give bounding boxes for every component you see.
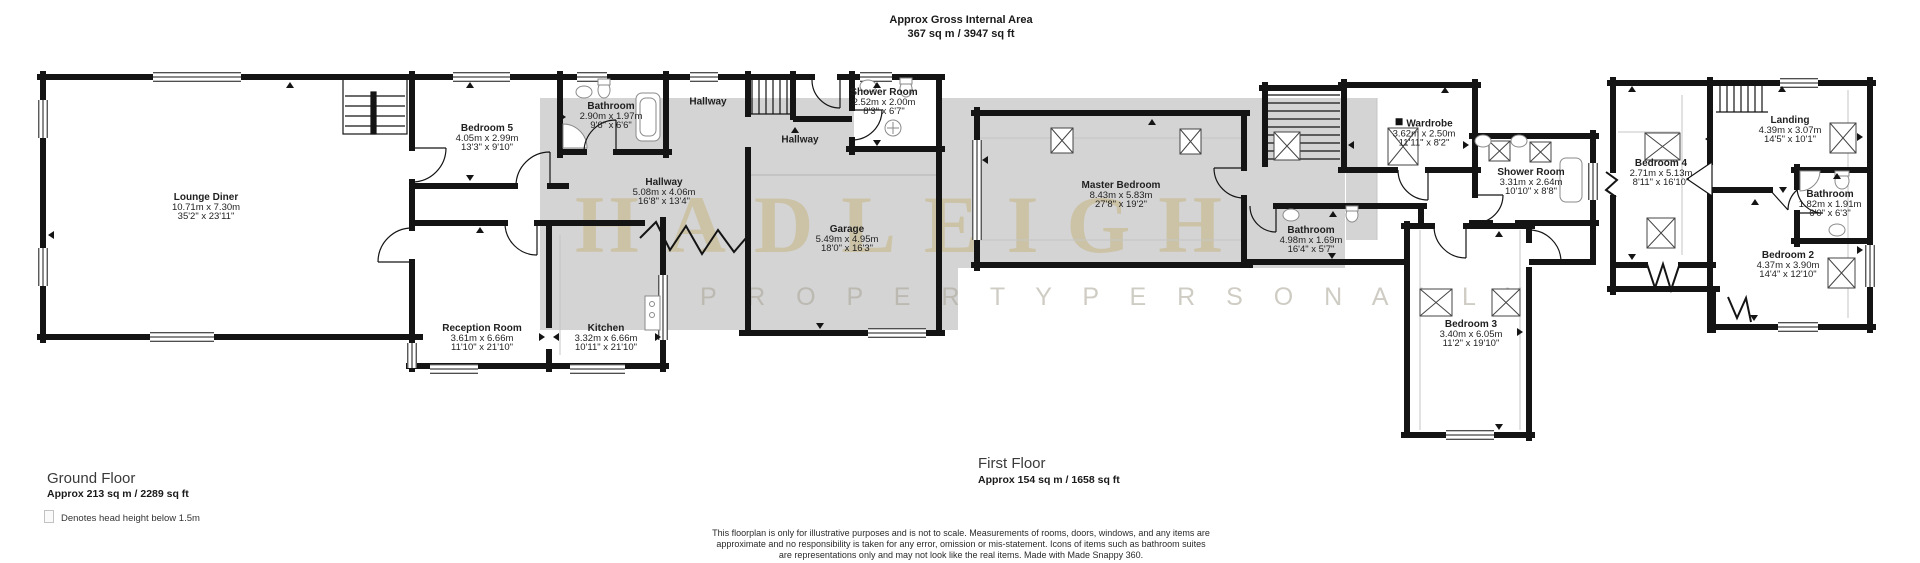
room-label-hallway-top: Hallway	[689, 97, 726, 107]
first-floor-title: First Floor	[978, 455, 1046, 472]
stairs-ground-lounge	[343, 76, 407, 134]
wardrobe-marker-icon	[1395, 118, 1402, 125]
room-dim-imperial: 14'4" x 12'10"	[1757, 270, 1820, 280]
gross-area-value: 367 sq m / 3947 sq ft	[908, 28, 1015, 40]
room-label-reception-room: Reception Room 3.61m x 6.66m 11'10" x 21…	[442, 324, 521, 353]
ground-floor-title: Ground Floor	[47, 470, 135, 487]
room-name: Hallway	[689, 97, 726, 107]
room-dim-imperial: 11'11" x 8'2"	[1393, 138, 1456, 148]
room-dim-imperial: 35'2" x 23'11"	[172, 212, 240, 222]
room-dim-imperial: 6'0" x 6'3"	[1799, 209, 1862, 219]
room-label-garage: Garage 5.49m x 4.95m 18'0" x 16'3"	[816, 225, 879, 254]
first-floor-area: Approx 154 sq m / 1658 sq ft	[978, 474, 1120, 486]
room-label-bathroom-ground: Bathroom 2.90m x 1.97m 9'6" x 6'6"	[580, 102, 643, 131]
stairs-far-right	[1716, 86, 1768, 112]
room-label-bathroom-first: Bathroom 4.98m x 1.69m 16'4" x 5'7"	[1280, 226, 1343, 255]
sink-icon	[1511, 135, 1527, 147]
gross-area-title: Approx Gross Internal Area	[889, 14, 1032, 26]
room-label-kitchen: Kitchen 3.32m x 6.66m 10'11" x 21'10"	[575, 324, 638, 353]
room-dim-imperial: 16'8" x 13'4"	[633, 197, 696, 207]
room-label-hallway-mid: Hallway	[781, 135, 818, 145]
disclaimer-text: This floorplan is only for illustrative …	[711, 528, 1211, 561]
room-label-hallway-main: Hallway 5.08m x 4.06m 16'8" x 13'4"	[633, 178, 696, 207]
gross-internal-area: Approx Gross Internal Area 367 sq m / 39…	[711, 14, 1211, 42]
room-dim-imperial: 11'2" x 19'10"	[1440, 339, 1503, 349]
room-dim-imperial: 10'11" x 21'10"	[575, 343, 638, 353]
floorplan-drawing	[0, 0, 1920, 563]
windows	[38, 72, 1875, 440]
room-label-bathroom-far-right: Bathroom 1.82m x 1.91m 6'0" x 6'3"	[1799, 190, 1862, 219]
room-name: Wardrobe	[1393, 118, 1456, 129]
head-height-legend-text: Denotes head height below 1.5m	[61, 513, 200, 524]
room-label-bedroom-4: Bedroom 4 2.71m x 5.13m 8'11" x 16'10"	[1630, 159, 1693, 188]
room-dim-imperial: 11'10" x 21'10"	[442, 343, 521, 353]
room-label-master-bedroom: Master Bedroom 8.43m x 5.83m 27'8" x 19'…	[1082, 181, 1161, 210]
room-label-wardrobe: Wardrobe 3.62m x 2.50m 11'11" x 8'2"	[1393, 118, 1456, 148]
head-height-legend: Denotes head height below 1.5m	[44, 510, 200, 524]
room-name: Hallway	[781, 135, 818, 145]
room-label-bedroom-5: Bedroom 5 4.05m x 2.99m 13'3" x 9'10"	[456, 124, 519, 153]
walls	[40, 74, 1873, 438]
room-dim-imperial: 8'3" x 6'7"	[850, 107, 917, 117]
zigzag-marks	[640, 172, 1751, 322]
room-label-shower-room-ground: Shower Room 2.52m x 2.00m 8'3" x 6'7"	[850, 88, 917, 117]
room-label-landing: Landing 4.39m x 3.07m 14'5" x 10'1"	[1759, 116, 1822, 145]
stairs-ground-hall	[748, 76, 793, 114]
sink-icon	[1283, 209, 1299, 221]
floorplan-page: HADLEIGH P R O P E R T Y P E R S O N A L…	[0, 0, 1920, 563]
room-dim-imperial: 18'0" x 16'3"	[816, 244, 879, 254]
room-label-bedroom-3: Bedroom 3 3.40m x 6.05m 11'2" x 19'10"	[1440, 320, 1503, 349]
skylight-boxes	[1051, 123, 1856, 316]
room-dim-imperial: 14'5" x 10'1"	[1759, 135, 1822, 145]
room-dim-imperial: 27'8" x 19'2"	[1082, 200, 1161, 210]
room-dim-imperial: 16'4" x 5'7"	[1280, 245, 1343, 255]
head-height-legend-icon	[44, 510, 54, 523]
room-label-shower-room-first: Shower Room 3.31m x 2.64m 10'10" x 8'8"	[1497, 168, 1564, 197]
room-label-bedroom-2: Bedroom 2 4.37m x 3.90m 14'4" x 12'10"	[1757, 251, 1820, 280]
ground-floor-area: Approx 213 sq m / 2289 sq ft	[47, 488, 189, 500]
sink-icon	[1829, 224, 1845, 236]
room-dim-imperial: 9'6" x 6'6"	[580, 121, 643, 131]
room-dim-imperial: 13'3" x 9'10"	[456, 143, 519, 153]
sink-icon	[1475, 135, 1491, 147]
room-dim-imperial: 8'11" x 16'10"	[1630, 178, 1693, 188]
room-label-lounge-diner: Lounge Diner 10.71m x 7.30m 35'2" x 23'1…	[172, 193, 240, 222]
sink-icon	[576, 86, 592, 98]
room-dim-imperial: 10'10" x 8'8"	[1497, 187, 1564, 197]
